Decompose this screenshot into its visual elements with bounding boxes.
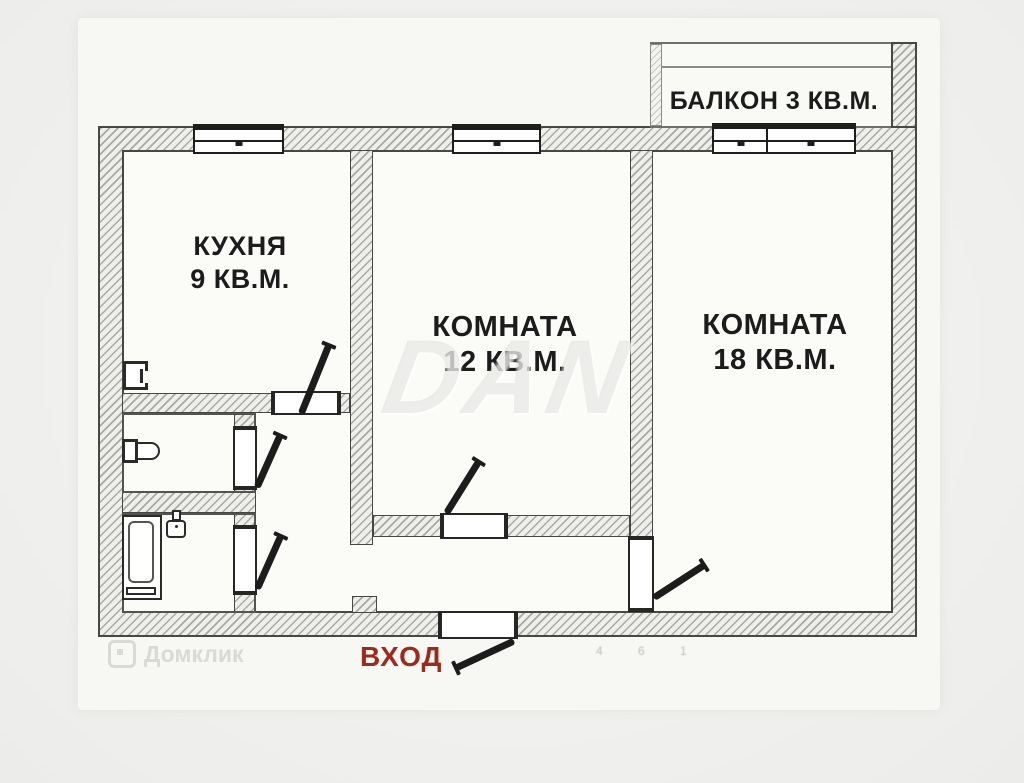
sink-drain bbox=[175, 525, 178, 528]
floor-plan: БАЛКОН 3 КВ.М. КУХНЯ 9 КВ.М. КОМНАТА 12 … bbox=[0, 0, 1024, 783]
window-tick bbox=[808, 140, 815, 146]
window-tick bbox=[235, 140, 242, 146]
room18-name: КОМНАТА bbox=[655, 308, 895, 343]
vent-icon bbox=[123, 361, 148, 390]
kitchen-area: 9 КВ.М. bbox=[140, 263, 340, 296]
balcony-right-wall bbox=[891, 42, 917, 128]
domklik-text: Домклик bbox=[144, 641, 243, 668]
balcony-railing-line bbox=[650, 66, 917, 68]
bathroom-door-opening bbox=[233, 525, 257, 595]
vent-opening bbox=[144, 371, 148, 383]
wall-wc-bath-divider bbox=[122, 491, 256, 513]
dan-watermark: DAN bbox=[374, 318, 641, 438]
toilet-bowl bbox=[136, 442, 160, 460]
toilet-icon bbox=[122, 437, 164, 465]
domklik-watermark: Домклик bbox=[108, 640, 243, 668]
balcony-door-window-icon bbox=[712, 123, 770, 154]
room18-label: КОМНАТА 18 КВ.М. bbox=[655, 308, 895, 379]
house-logo-icon bbox=[108, 640, 136, 668]
kitchen-window-icon bbox=[193, 124, 284, 154]
wall-stub-hall bbox=[352, 596, 377, 613]
room12-window-icon bbox=[452, 124, 541, 154]
window-frame-bar bbox=[714, 125, 768, 129]
faint-dimension-marks: 4 6 1 bbox=[596, 644, 726, 658]
entrance-label: ВХОД bbox=[360, 641, 442, 673]
window-tick bbox=[493, 140, 500, 146]
balcony-window-icon bbox=[766, 123, 856, 154]
sink-basin bbox=[166, 520, 186, 538]
window-frame-bar bbox=[195, 126, 282, 130]
room18-door-opening bbox=[628, 536, 654, 612]
window-frame-bar bbox=[454, 126, 539, 130]
entrance-door-opening bbox=[438, 611, 518, 639]
window-tick bbox=[738, 140, 745, 146]
sink-tap bbox=[172, 510, 181, 521]
bathtub-icon bbox=[122, 515, 162, 600]
room18-area: 18 КВ.М. bbox=[655, 343, 895, 378]
bathtub-inner bbox=[128, 521, 154, 583]
vent-inner-bar bbox=[140, 369, 143, 383]
window-frame-bar bbox=[768, 125, 854, 129]
kitchen-name: КУХНЯ bbox=[140, 230, 340, 263]
sink-icon bbox=[162, 512, 194, 542]
wc-door-opening bbox=[233, 426, 257, 490]
bathtub-step bbox=[126, 587, 156, 595]
room12-door-opening bbox=[440, 513, 508, 539]
wall-kitchen-room12 bbox=[350, 150, 373, 545]
balcony-label: БАЛКОН 3 КВ.М. bbox=[655, 86, 893, 117]
kitchen-label: КУХНЯ 9 КВ.М. bbox=[140, 230, 340, 296]
